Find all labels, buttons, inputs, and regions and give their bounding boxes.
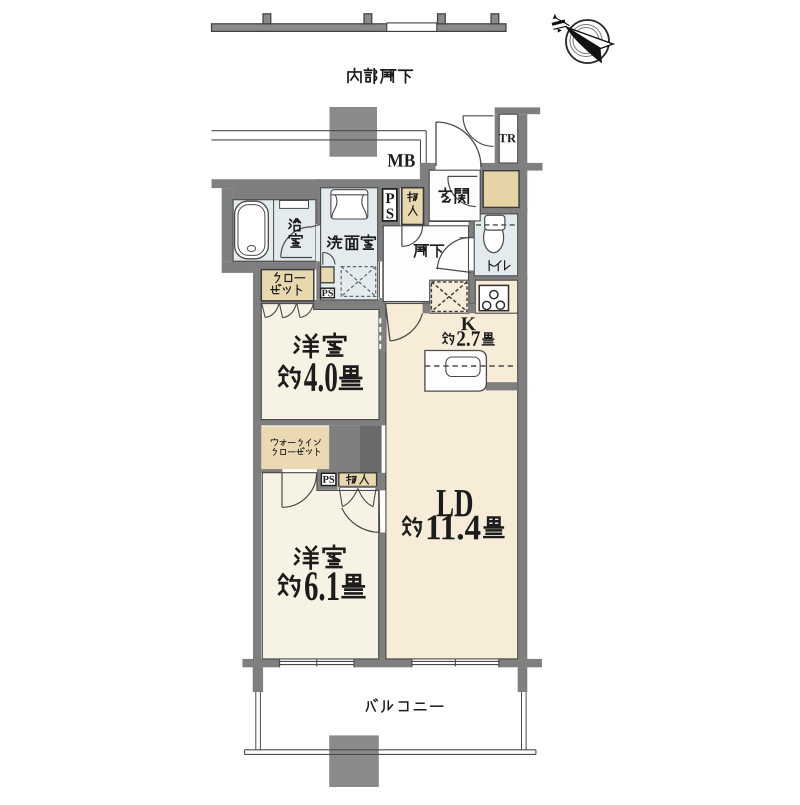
svg-text:P: P <box>385 191 394 207</box>
svg-text:11.4: 11.4 <box>425 507 481 547</box>
svg-text:TR: TR <box>499 131 517 145</box>
svg-text:S: S <box>386 206 394 222</box>
svg-text:4.0: 4.0 <box>304 355 338 401</box>
svg-text:MB: MB <box>387 151 415 172</box>
svg-text:6.1: 6.1 <box>304 564 340 610</box>
svg-text:PS: PS <box>322 475 334 486</box>
svg-text:2.7: 2.7 <box>456 326 480 351</box>
svg-text:PS: PS <box>322 288 334 299</box>
